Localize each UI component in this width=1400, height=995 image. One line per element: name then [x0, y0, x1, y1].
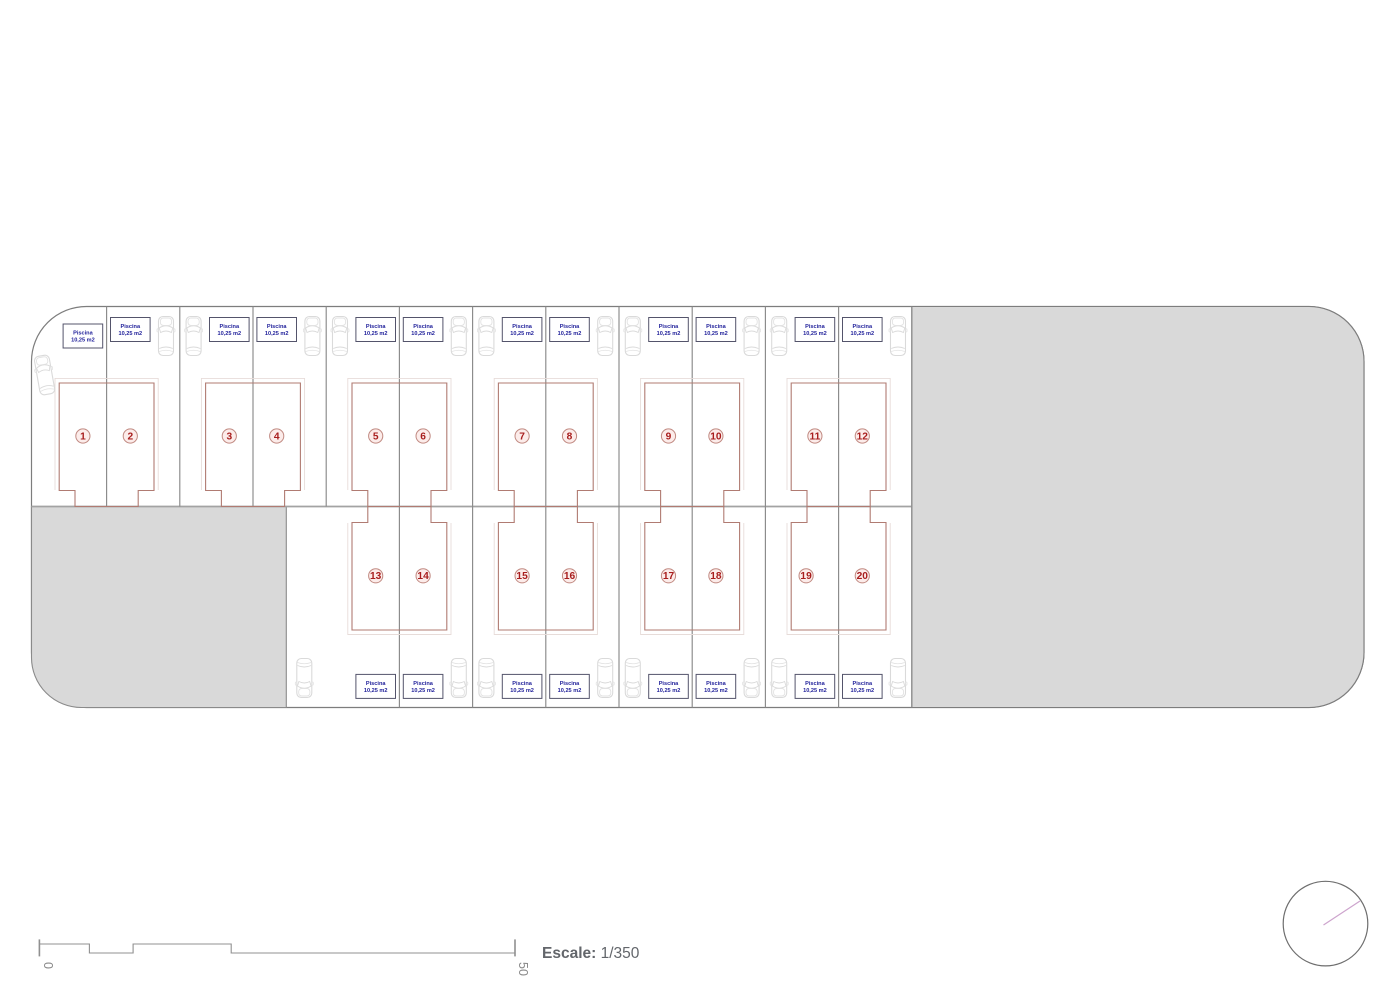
- svg-text:1: 1: [80, 431, 86, 442]
- svg-text:10,25 m2: 10,25 m2: [411, 688, 435, 694]
- svg-text:Piscina: Piscina: [512, 681, 532, 687]
- svg-text:Piscina: Piscina: [366, 681, 386, 687]
- svg-text:Piscina: Piscina: [853, 681, 873, 687]
- svg-text:10,25 m2: 10,25 m2: [704, 688, 728, 694]
- svg-text:Escale: 1/350: Escale: 1/350: [542, 945, 640, 962]
- svg-text:17: 17: [663, 571, 675, 582]
- svg-text:0: 0: [41, 962, 55, 969]
- svg-text:8: 8: [567, 431, 573, 442]
- svg-text:Piscina: Piscina: [413, 681, 433, 687]
- svg-text:Piscina: Piscina: [706, 324, 726, 330]
- svg-text:Piscina: Piscina: [805, 681, 825, 687]
- svg-text:15: 15: [516, 571, 528, 582]
- svg-text:10,25 m2: 10,25 m2: [411, 331, 435, 337]
- svg-text:Piscina: Piscina: [853, 324, 873, 330]
- svg-text:10,25 m2: 10,25 m2: [803, 688, 827, 694]
- svg-text:10,25 m2: 10,25 m2: [71, 337, 95, 343]
- svg-text:Piscina: Piscina: [659, 681, 679, 687]
- svg-text:Piscina: Piscina: [560, 324, 580, 330]
- svg-text:Piscina: Piscina: [220, 324, 240, 330]
- svg-text:10,25 m2: 10,25 m2: [364, 331, 388, 337]
- svg-text:Piscina: Piscina: [560, 681, 580, 687]
- svg-text:5: 5: [373, 431, 379, 442]
- svg-text:Piscina: Piscina: [366, 324, 386, 330]
- svg-text:Piscina: Piscina: [413, 324, 433, 330]
- svg-text:10,25 m2: 10,25 m2: [803, 331, 827, 337]
- svg-text:9: 9: [666, 431, 672, 442]
- svg-text:Piscina: Piscina: [805, 324, 825, 330]
- svg-text:10,25 m2: 10,25 m2: [118, 331, 142, 337]
- svg-text:Piscina: Piscina: [706, 681, 726, 687]
- svg-text:Piscina: Piscina: [267, 324, 287, 330]
- svg-text:10,25 m2: 10,25 m2: [558, 688, 582, 694]
- svg-text:10,25 m2: 10,25 m2: [217, 331, 241, 337]
- svg-text:10,25 m2: 10,25 m2: [510, 688, 534, 694]
- svg-text:20: 20: [857, 571, 869, 582]
- svg-text:10,25 m2: 10,25 m2: [657, 331, 681, 337]
- svg-text:Piscina: Piscina: [659, 324, 679, 330]
- svg-text:Piscina: Piscina: [121, 324, 141, 330]
- svg-text:18: 18: [710, 571, 722, 582]
- svg-text:14: 14: [417, 571, 429, 582]
- svg-text:10: 10: [710, 431, 722, 442]
- svg-text:10,25 m2: 10,25 m2: [364, 688, 388, 694]
- svg-text:6: 6: [420, 431, 426, 442]
- svg-text:12: 12: [857, 431, 869, 442]
- svg-text:19: 19: [800, 571, 812, 582]
- svg-text:Piscina: Piscina: [512, 324, 532, 330]
- svg-text:10,25 m2: 10,25 m2: [558, 331, 582, 337]
- svg-text:7: 7: [519, 431, 525, 442]
- svg-text:Piscina: Piscina: [73, 330, 93, 336]
- svg-text:10,25 m2: 10,25 m2: [850, 688, 874, 694]
- svg-text:11: 11: [810, 431, 821, 442]
- svg-text:4: 4: [274, 431, 280, 442]
- svg-text:10,25 m2: 10,25 m2: [704, 331, 728, 337]
- svg-text:16: 16: [564, 571, 576, 582]
- svg-text:10,25 m2: 10,25 m2: [510, 331, 534, 337]
- svg-text:3: 3: [226, 431, 232, 442]
- svg-text:10,25 m2: 10,25 m2: [850, 331, 874, 337]
- svg-text:10,25 m2: 10,25 m2: [265, 331, 289, 337]
- svg-text:10,25 m2: 10,25 m2: [657, 688, 681, 694]
- svg-text:13: 13: [370, 571, 382, 582]
- svg-text:2: 2: [127, 431, 133, 442]
- svg-text:50: 50: [516, 962, 530, 976]
